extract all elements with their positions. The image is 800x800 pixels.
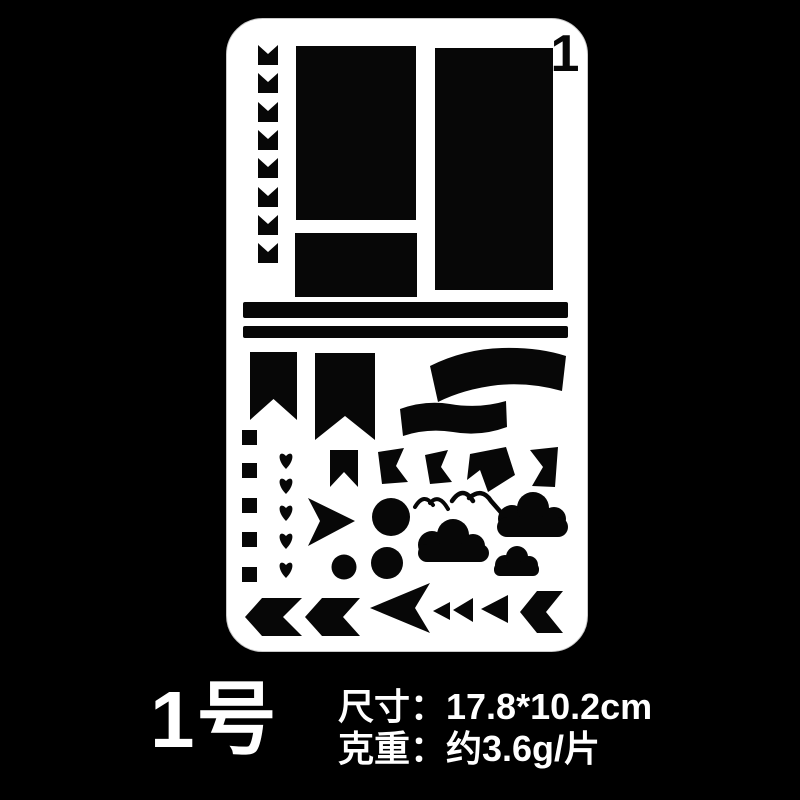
weight-label: 克重： (338, 728, 446, 769)
spec-text: 尺寸：17.8*10.2cm 克重：约3.6g/片 (338, 686, 652, 770)
tall-rectangle-cutout (435, 48, 553, 290)
ribbon-banner-small (400, 401, 507, 436)
size-value: 17.8*10.2cm (446, 686, 652, 727)
circle-small (332, 555, 357, 580)
small-rectangle-cutout (295, 233, 417, 297)
size-label: 尺寸： (338, 686, 446, 727)
model-number-label: 1号 (150, 680, 279, 760)
circle-medium (371, 547, 403, 579)
divider-bar-1 (243, 302, 568, 318)
caption-row: 1号 尺寸：17.8*10.2cm 克重：约3.6g/片 (0, 672, 800, 782)
large-rectangle-cutout (296, 46, 416, 220)
circle-large (372, 498, 410, 536)
stencil-sheet: 1 (226, 18, 588, 652)
weight-value: 约3.6g/片 (446, 728, 600, 769)
product-photo: 1 (0, 0, 800, 800)
sheet-number: 1 (551, 25, 580, 83)
size-line: 尺寸：17.8*10.2cm (338, 686, 652, 728)
weight-line: 克重：约3.6g/片 (338, 728, 652, 770)
divider-bar-2 (243, 326, 568, 338)
